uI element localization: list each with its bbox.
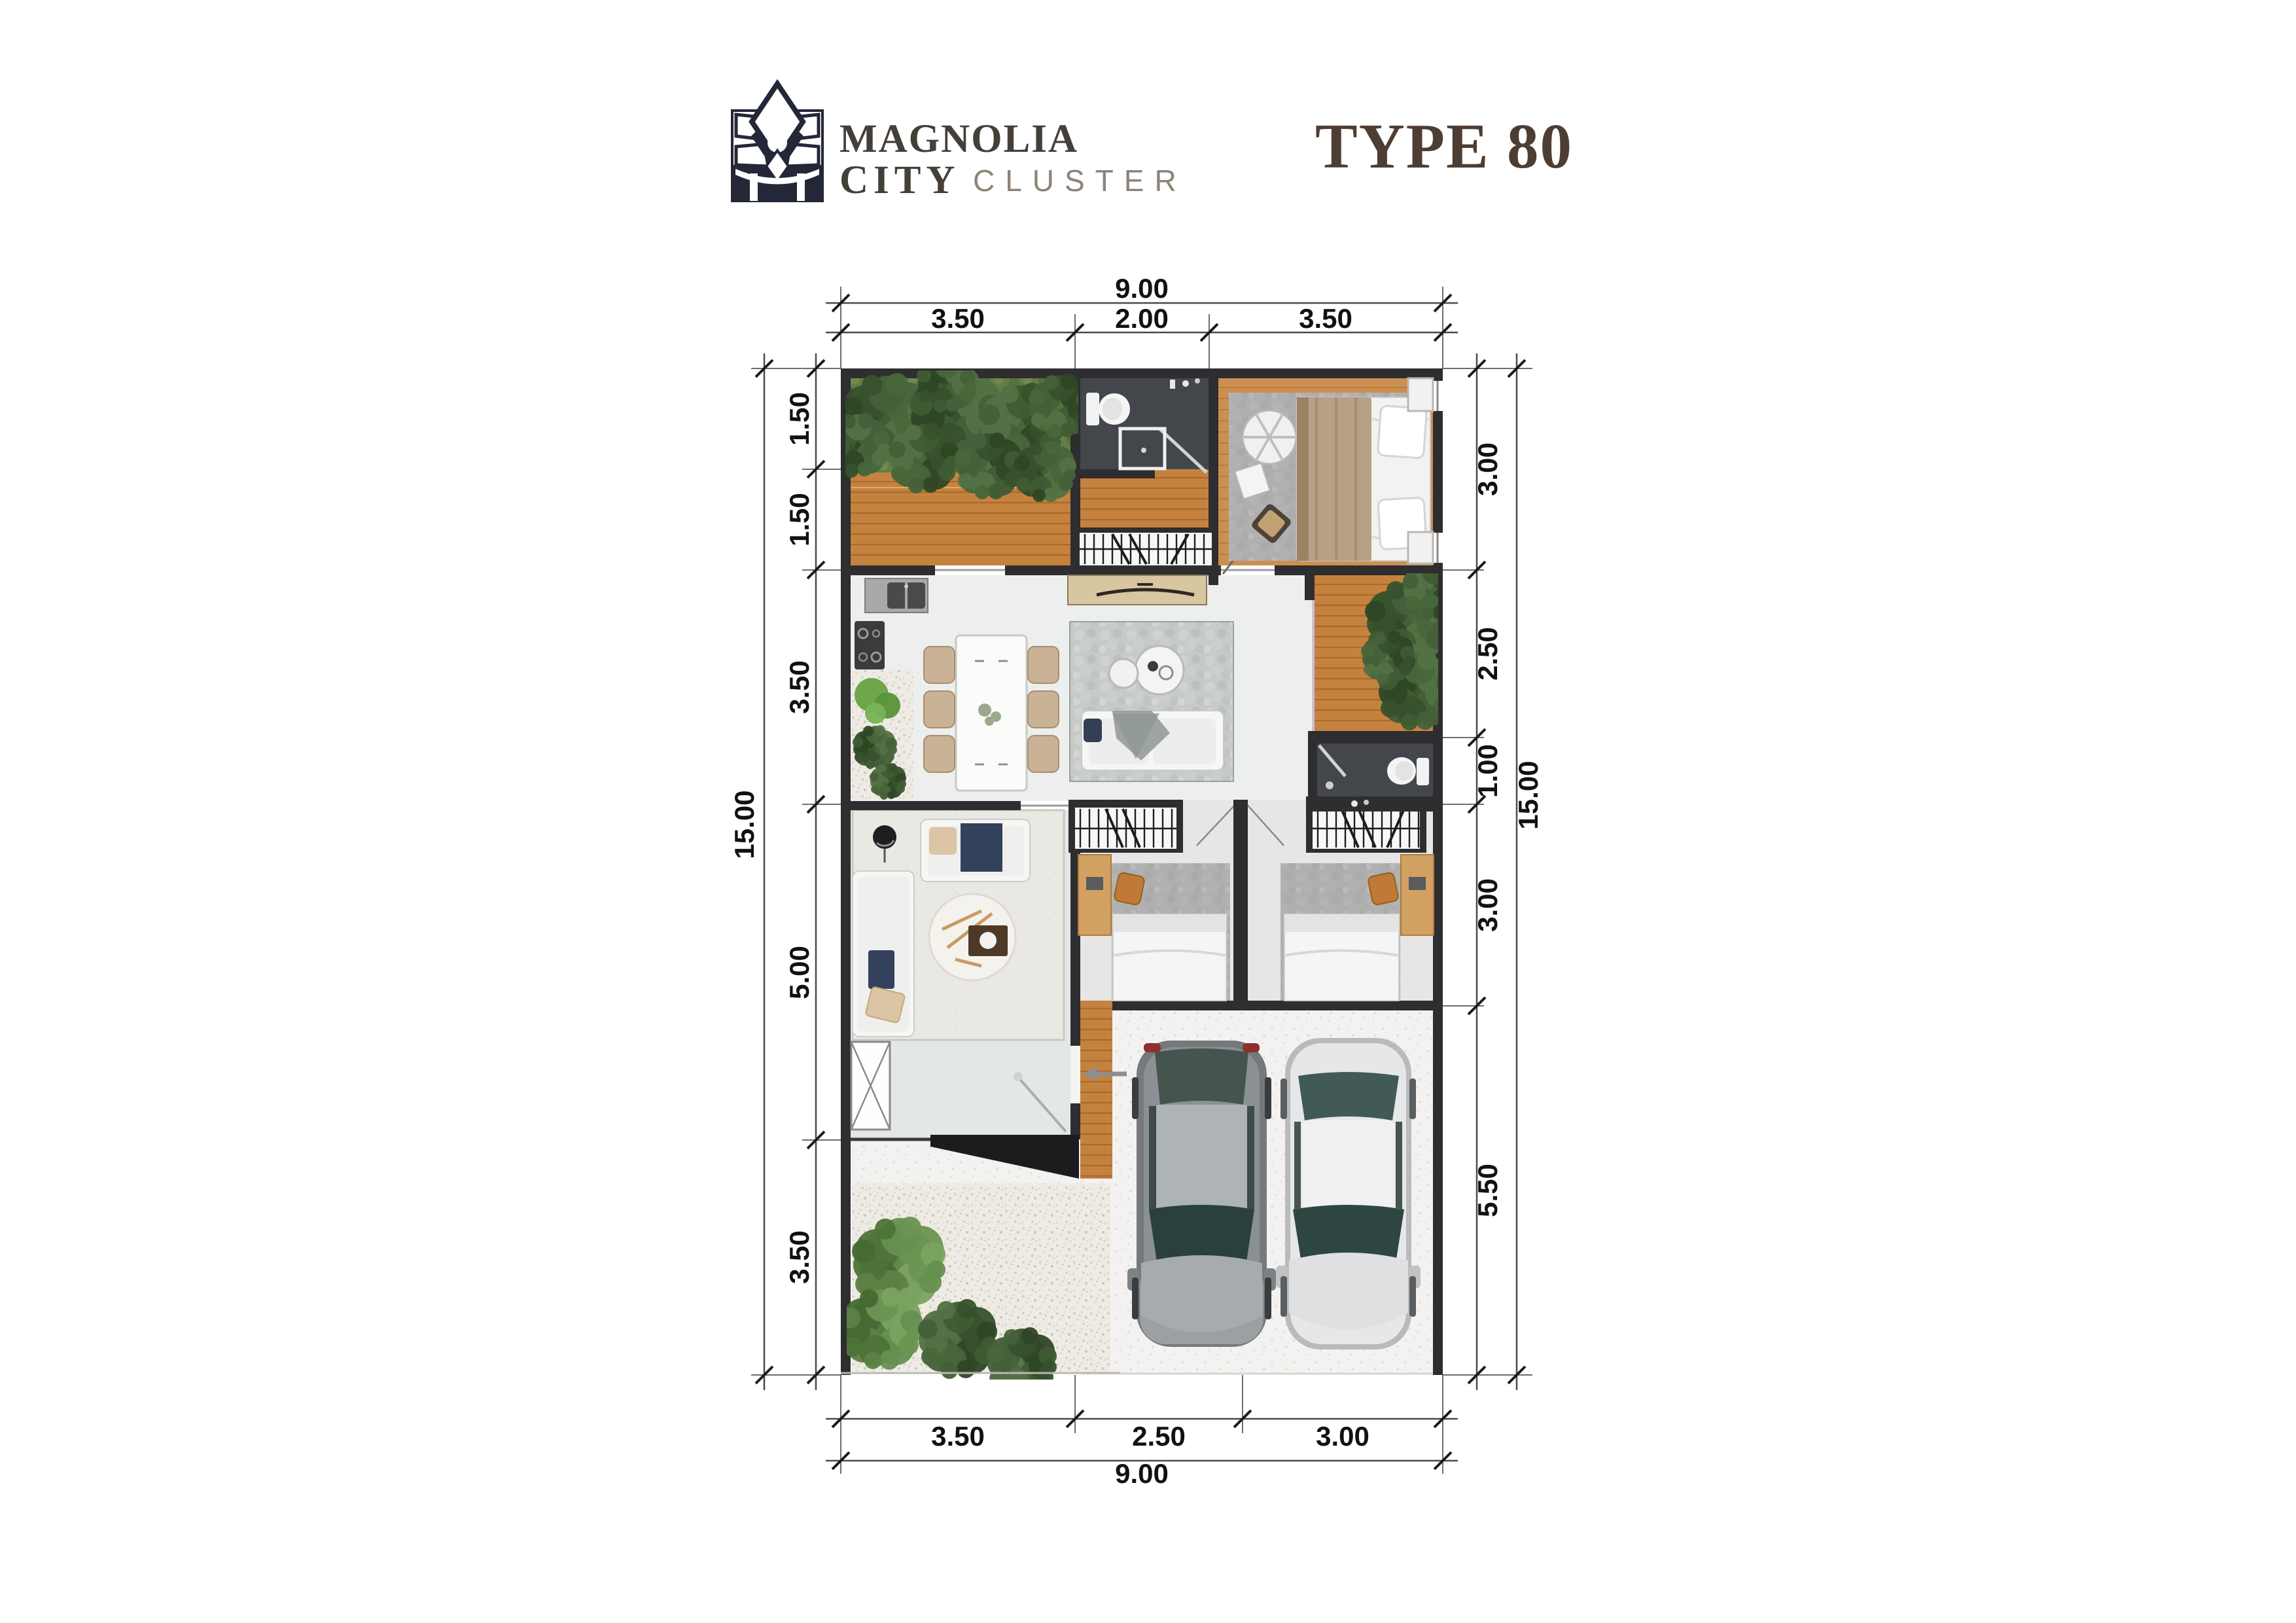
svg-text:5.50: 5.50 xyxy=(1472,1164,1503,1217)
svg-text:CITY: CITY xyxy=(839,158,961,202)
svg-text:9.00: 9.00 xyxy=(1115,273,1169,304)
svg-text:15.00: 15.00 xyxy=(729,790,760,859)
svg-text:3.50: 3.50 xyxy=(784,660,815,714)
svg-text:MAGNOLIA: MAGNOLIA xyxy=(839,117,1078,161)
svg-text:TYPE 80: TYPE 80 xyxy=(1315,111,1573,181)
svg-text:2.50: 2.50 xyxy=(1132,1421,1186,1452)
svg-text:3.00: 3.00 xyxy=(1472,878,1503,932)
svg-text:3.00: 3.00 xyxy=(1316,1421,1369,1452)
svg-text:2.00: 2.00 xyxy=(1115,303,1169,334)
svg-text:3.50: 3.50 xyxy=(931,1421,985,1452)
svg-text:3.50: 3.50 xyxy=(1299,303,1352,334)
svg-text:15.00: 15.00 xyxy=(1513,760,1544,829)
svg-text:3.50: 3.50 xyxy=(784,1230,815,1284)
svg-text:3.50: 3.50 xyxy=(931,303,985,334)
svg-text:5.00: 5.00 xyxy=(784,946,815,999)
svg-text:9.00: 9.00 xyxy=(1115,1458,1169,1489)
svg-text:1.50: 1.50 xyxy=(784,493,815,546)
svg-text:2.50: 2.50 xyxy=(1472,627,1503,681)
svg-text:3.00: 3.00 xyxy=(1472,442,1503,496)
svg-text:CLUSTER: CLUSTER xyxy=(973,164,1187,198)
svg-text:1.50: 1.50 xyxy=(784,392,815,446)
svg-text:1.00: 1.00 xyxy=(1472,744,1503,798)
